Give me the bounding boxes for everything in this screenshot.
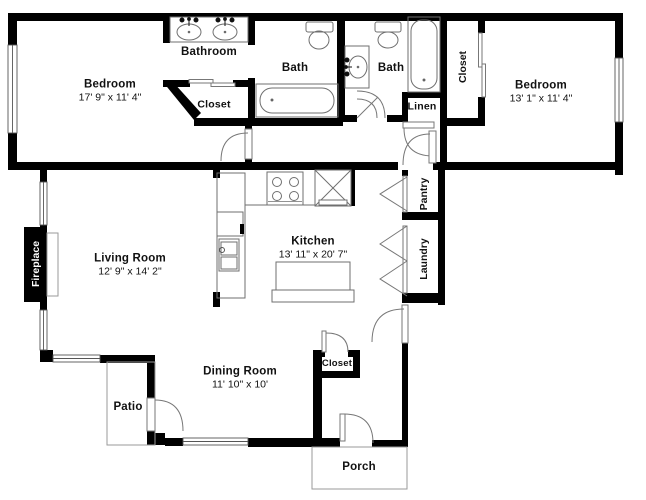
window-bedroom-right — [615, 58, 623, 122]
toilet-bath-left — [306, 22, 333, 49]
base-cabinet — [217, 212, 244, 236]
label-bedroom-left: Bedroom17' 9" x 11' 4" — [79, 77, 142, 105]
window-dining — [183, 438, 248, 445]
sliding-door-closet-right — [479, 33, 486, 97]
door-bedroom-left — [221, 129, 252, 161]
bifold-laundry — [380, 226, 407, 296]
sliding-door-closet-left — [189, 80, 235, 87]
label-bath-left: Bath — [282, 61, 308, 75]
window-living-bottom — [53, 355, 100, 362]
label-bath-right: Bath — [378, 61, 404, 75]
window-bedroom-left — [8, 45, 17, 133]
fireplace-hearth — [47, 233, 58, 296]
label-patio: Patio — [113, 400, 142, 414]
label-closet-bedroom-left: Closet — [197, 98, 230, 111]
bathtub-bath-left — [256, 84, 338, 117]
door-patio — [147, 398, 183, 431]
label-laundry: Laundry — [414, 238, 432, 279]
label-closet-bedroom-right: Closet — [453, 51, 471, 83]
label-bedroom-right: Bedroom13' 1" x 11' 4" — [510, 78, 573, 106]
doors — [147, 91, 436, 443]
label-dining-room: Dining Room11' 10" x 10' — [203, 364, 277, 392]
kitchen-island — [272, 262, 354, 302]
label-linen: Linen — [408, 100, 437, 113]
label-closet-entry: Closet — [322, 358, 352, 370]
stove — [267, 172, 303, 205]
closet-angled-wall — [163, 82, 201, 120]
bathtub-bath-right — [408, 17, 440, 92]
door-entry-closet — [322, 331, 348, 352]
single-sink-vanity — [345, 46, 369, 88]
kitchen-sink — [219, 239, 239, 271]
window-living-lower — [40, 310, 47, 350]
refrigerator — [315, 170, 351, 206]
label-porch: Porch — [342, 460, 376, 474]
toilet-bath-right — [375, 22, 401, 48]
label-bathroom: Bathroom — [181, 45, 237, 59]
door-entry-hall — [372, 305, 408, 343]
label-living-room: Living Room12' 9" x 14' 2" — [94, 251, 166, 279]
door-porch — [340, 414, 373, 443]
label-fireplace: Fireplace — [26, 241, 44, 287]
bifold-pantry — [380, 176, 407, 212]
label-pantry: Pantry — [414, 178, 432, 211]
label-kitchen: Kitchen13' 11" x 20' 7" — [279, 234, 347, 262]
door-hall — [403, 131, 436, 165]
double-sink-vanity — [170, 17, 248, 42]
floor-plan: Bathroom Bedroom17' 9" x 11' 4" Closet B… — [0, 0, 646, 500]
window-living-upper — [40, 182, 47, 225]
door-bath-right — [357, 91, 385, 118]
